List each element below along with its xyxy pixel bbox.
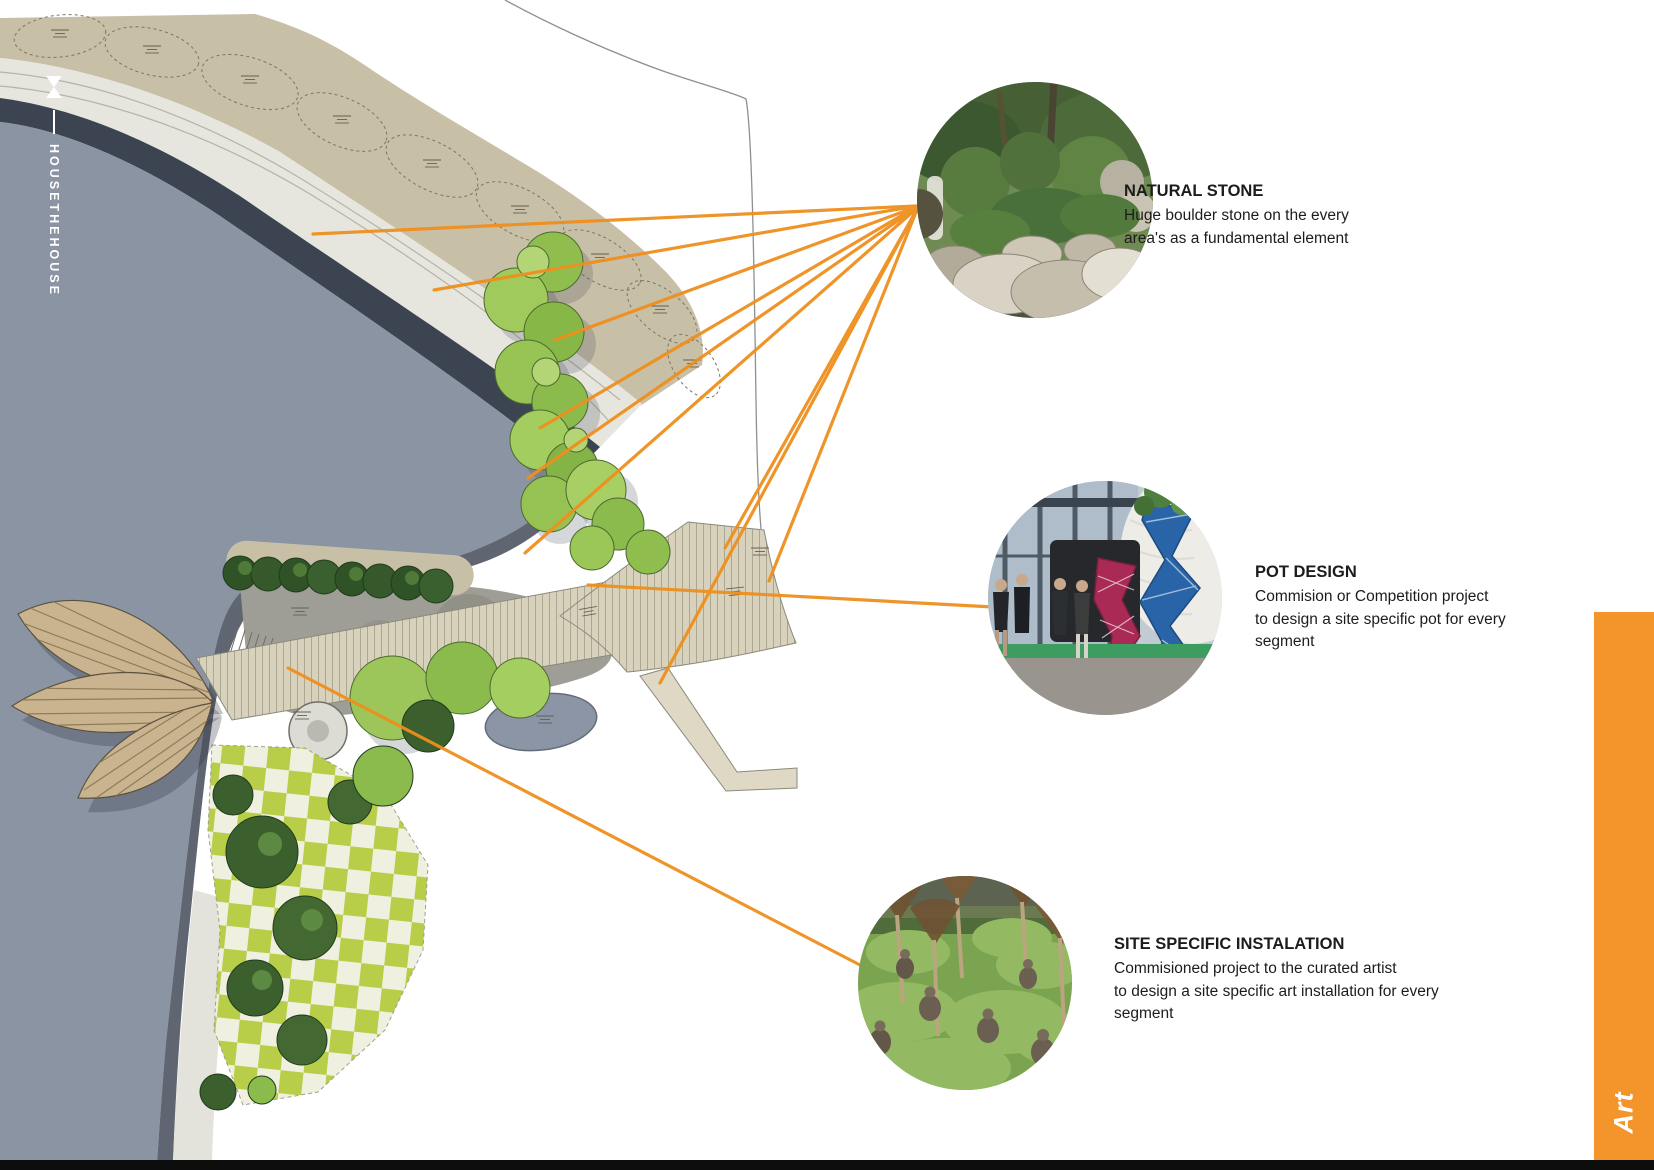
chapter-tab-art[interactable]: Art (1594, 612, 1654, 1170)
chapter-tab-label: Art (1609, 1092, 1640, 1134)
callout-site-specific-instalation: SITE SPECIFIC INSTALATION Commisioned pr… (1114, 935, 1439, 1026)
callout-natural-stone: NATURAL STONE Huge boulder stone on the … (1124, 182, 1349, 250)
callout-title: POT DESIGN (1255, 563, 1506, 582)
callout-title: SITE SPECIFIC INSTALATION (1114, 935, 1439, 954)
presentation-page: HOUSETHEHOUSE NATURAL STONE Huge boulder… (0, 0, 1654, 1170)
callout-title: NATURAL STONE (1124, 182, 1349, 201)
callout-line: to design a site specific pot for every (1255, 609, 1506, 632)
callout-line: Commision or Competition project (1255, 586, 1506, 609)
brand-name: HOUSETHEHOUSE (47, 144, 61, 297)
callout-line: Huge boulder stone on the every (1124, 205, 1349, 228)
callout-pot-design: POT DESIGN Commision or Competition proj… (1255, 563, 1506, 654)
brand-divider (53, 110, 55, 134)
callout-line: segment (1114, 1003, 1439, 1026)
callout-line: to design a site specific art installati… (1114, 981, 1439, 1004)
hardscape (196, 522, 797, 1105)
callout-line: Commisioned project to the curated artis… (1114, 958, 1439, 981)
page-bottom-bar (0, 1160, 1654, 1170)
ribbon-path (640, 668, 797, 791)
bowtie-icon (46, 76, 62, 98)
site-installation-photo (833, 849, 1106, 1098)
brand-lockup: HOUSETHEHOUSE (46, 76, 62, 297)
callout-line: segment (1255, 631, 1506, 654)
pot-design-photo (988, 468, 1264, 718)
callout-line: area's as a fundamental element (1124, 228, 1349, 251)
